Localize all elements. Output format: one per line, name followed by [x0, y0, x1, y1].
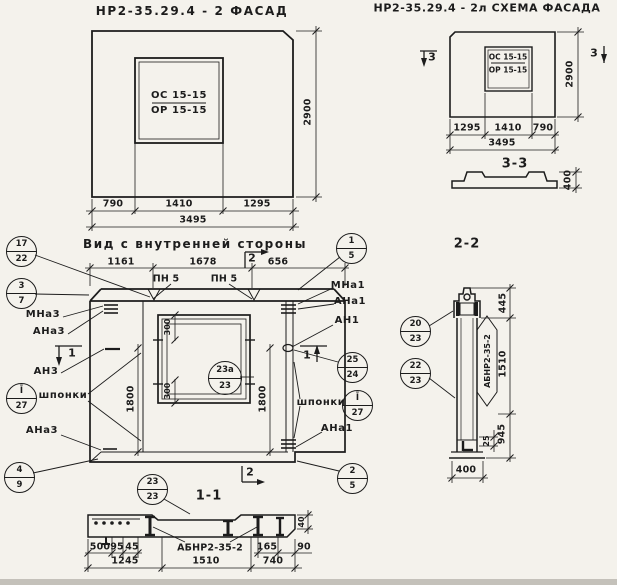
callout-20-23: 2023 — [400, 316, 431, 347]
s11-dim-740: 740 — [263, 556, 283, 566]
schema-window-mark-bottom: ОР 15-15 — [489, 66, 527, 74]
label-shponki-right: шпонки — [297, 398, 346, 408]
schema-dim-1410: 1410 — [494, 123, 521, 133]
section-2-2-title: 2-2 — [454, 238, 481, 251]
schema-dim-790: 790 — [533, 123, 553, 133]
inner-dim-300-top: 300 — [164, 319, 172, 336]
s11-dim-500: 500 — [90, 542, 110, 552]
schema-dim-1295: 1295 — [453, 123, 480, 133]
s11-dim-90: 90 — [297, 542, 311, 552]
section-1-marker-left: 1 — [68, 348, 76, 359]
callout-i-27-left: Ī27 — [6, 383, 37, 414]
s11-dim-45: 45 — [125, 542, 139, 552]
facade-dim-3495: 3495 — [179, 215, 206, 225]
facade-window-mark-top: ОС 15-15 — [151, 91, 207, 101]
s11-dim-95: 95 — [110, 542, 124, 552]
facade-dim-790: 790 — [103, 199, 123, 209]
schema-section3-marker-left: 3 — [428, 52, 436, 63]
drawing-linework — [0, 0, 617, 585]
section-1-1-panel-label: АБНР2-35-2 — [177, 543, 243, 553]
inner-view-title: Вид с внутренней стороны — [83, 238, 307, 250]
callout-4-9: 49 — [4, 462, 35, 493]
section-1-1-title: 1-1 — [196, 490, 223, 503]
facade-dim-1295: 1295 — [243, 199, 270, 209]
label-ana3: АНа3 — [33, 327, 65, 337]
s11-dim-40: 40 — [298, 516, 306, 527]
s11-dim-1245: 1245 — [111, 556, 138, 566]
schema-dim-2900: 2900 — [565, 60, 575, 87]
schema-title: НР2-35.29.4 - 2л СХЕМА ФАСАДА — [374, 3, 601, 14]
schema-section3-marker-right: 3 — [590, 48, 598, 59]
section-2-marker-top: 2 — [248, 253, 256, 264]
callout-i-27-right: Ī27 — [342, 390, 373, 421]
s22-dim-1510: 1510 — [498, 350, 508, 377]
scan-edge-artifact — [0, 579, 617, 585]
label-mna1: МНа1 — [331, 281, 365, 291]
pn5-label-2: ПН 5 — [211, 274, 238, 284]
callout-23-23: 2323 — [137, 474, 168, 505]
facade-window-mark-bottom: ОР 15-15 — [151, 106, 207, 116]
section-2-marker-bottom: 2 — [246, 467, 254, 478]
inner-dim-1678: 1678 — [189, 257, 216, 267]
callout-1-5: 15 — [336, 233, 367, 264]
facade-title: НР2-35.29.4 - 2 ФАСАД — [96, 5, 288, 17]
label-an1: АН1 — [335, 316, 360, 326]
callout-3-7: 37 — [6, 278, 37, 309]
inner-dim-1800-left: 1800 — [126, 385, 136, 412]
s22-dim-445: 445 — [498, 293, 508, 313]
section-1-marker-right: 1 — [303, 350, 311, 361]
label-ana1: АНа1 — [334, 297, 366, 307]
section-2-2 — [429, 284, 516, 483]
label-shponki-left: шпонки — [39, 391, 88, 401]
facade-dim-2900: 2900 — [303, 98, 313, 125]
section-3-3-title: 3-3 — [502, 158, 529, 171]
facade-dim-1410: 1410 — [165, 199, 192, 209]
callout-25-24: 2524 — [337, 352, 368, 383]
blueprint-sheet: НР2-35.29.4 - 2 ФАСАД ОС 15-15 ОР 15-15 … — [0, 0, 617, 585]
s22-dim-945: 945 — [497, 424, 507, 444]
label-ana3-lower: АНа3 — [26, 426, 58, 436]
section-2-2-panel-label: АБНР2-35-2 — [484, 334, 492, 388]
callout-17-22: 1722 — [6, 236, 37, 267]
inner-view — [33, 249, 349, 485]
label-ana1-lower: АНа1 — [321, 424, 353, 434]
callout-23a-23: 23а23 — [208, 361, 242, 395]
s22-dim-400: 400 — [456, 465, 476, 475]
callout-2-5: 25 — [337, 463, 368, 494]
label-an3: АН3 — [34, 367, 59, 377]
s11-dim-1510: 1510 — [192, 556, 219, 566]
section-3-3-dim-400: 400 — [563, 170, 573, 190]
pn5-label-1: ПН 5 — [153, 274, 180, 284]
inner-dim-656: 656 — [268, 257, 288, 267]
inner-dim-1161: 1161 — [107, 257, 134, 267]
schema-dim-3495: 3495 — [488, 138, 515, 148]
schema-window-mark-top: ОС 15-15 — [489, 53, 527, 61]
s11-dim-165: 165 — [257, 542, 277, 552]
callout-22-23: 2223 — [400, 358, 431, 389]
s22-dim-25: 25 — [483, 435, 491, 446]
inner-dim-300-bottom: 300 — [164, 383, 172, 400]
label-mna3: МНа3 — [26, 310, 60, 320]
inner-dim-1800-right: 1800 — [258, 385, 268, 412]
